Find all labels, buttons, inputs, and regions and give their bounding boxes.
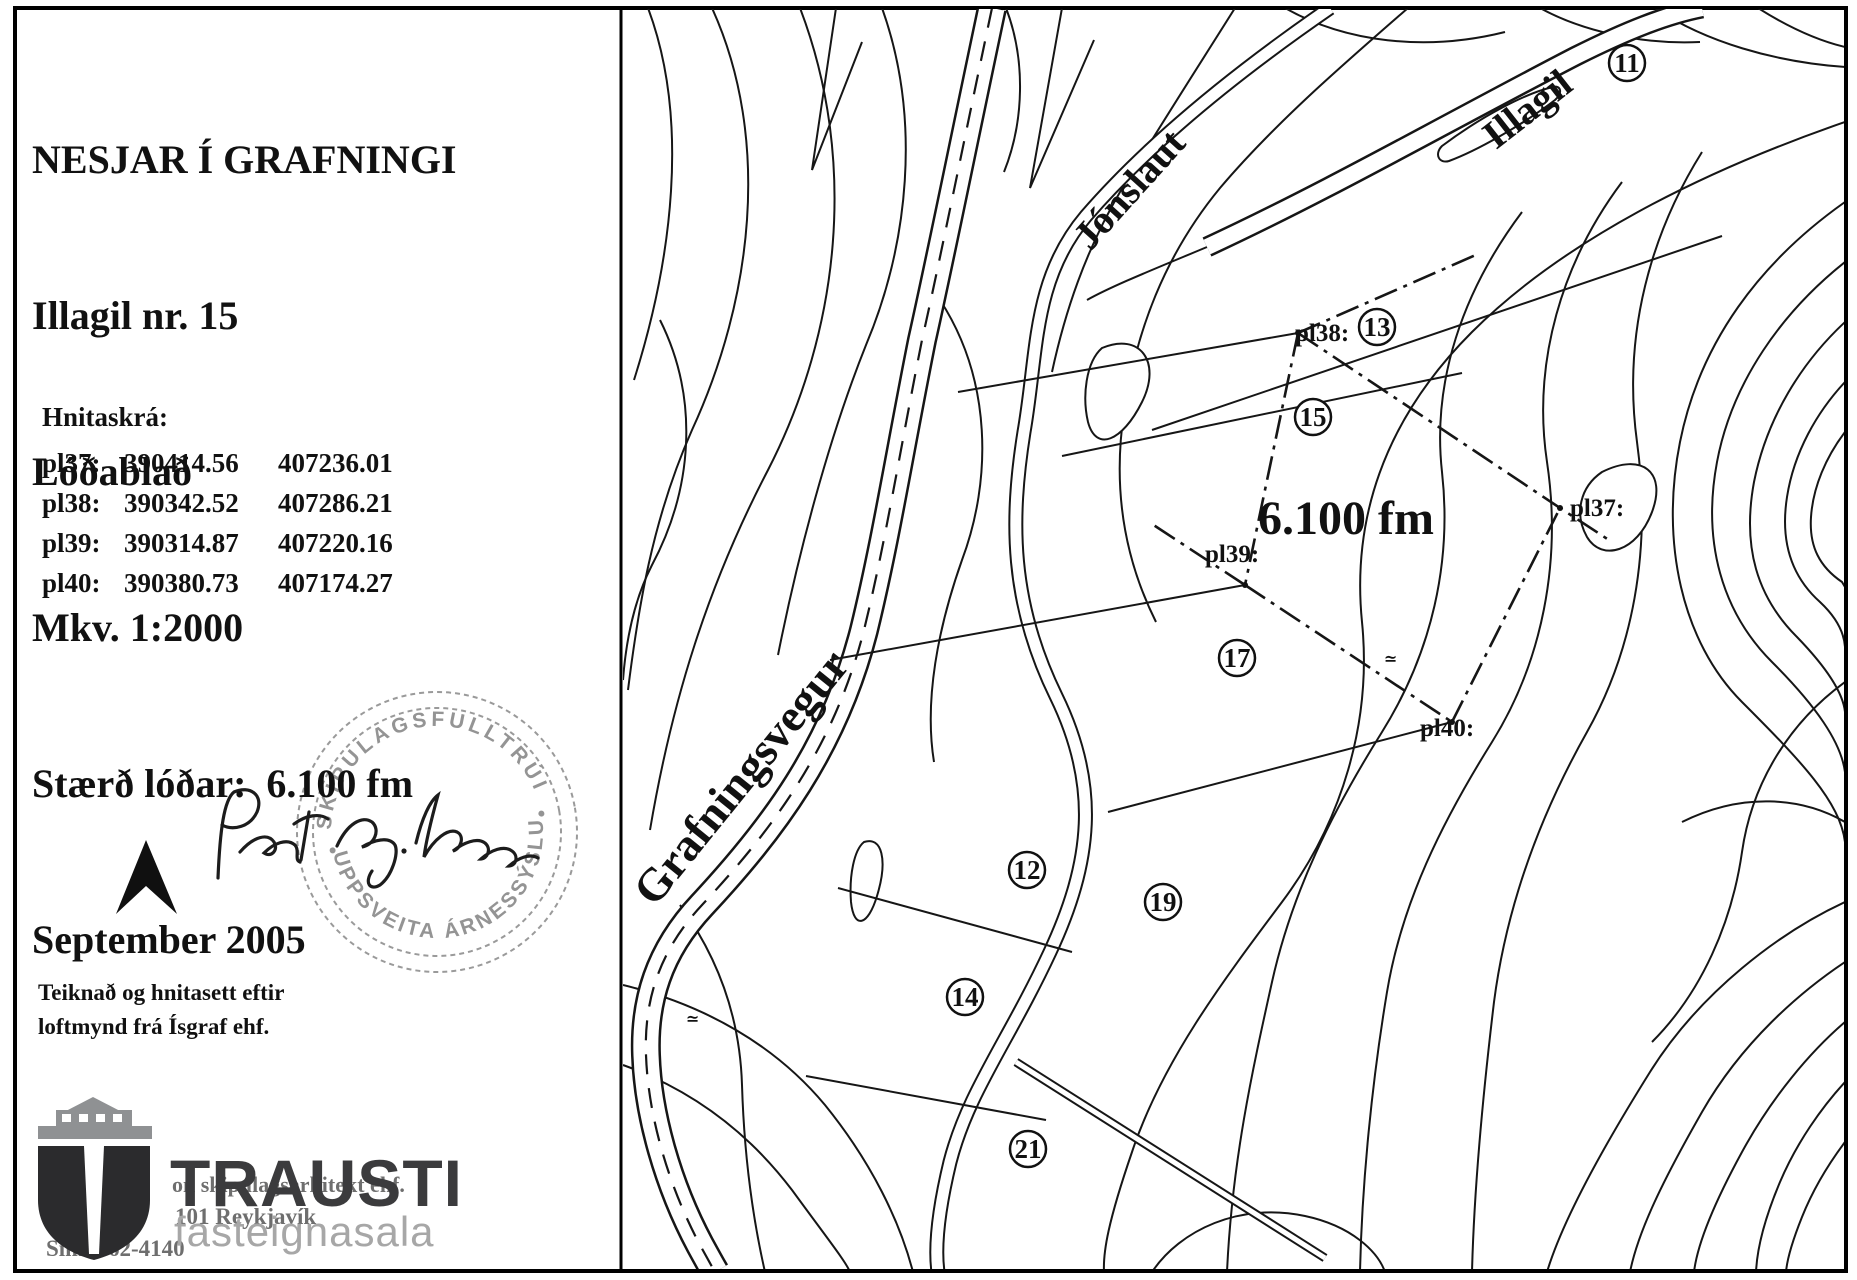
credit-line2: loftmynd frá Ísgraf ehf. <box>38 1010 284 1044</box>
svg-text:11: 11 <box>1614 48 1640 78</box>
table-row: pl37: 390414.56 407236.01 <box>42 443 393 483</box>
lot-size: Stærð lóðar: 6.100 fm <box>32 758 457 810</box>
stream-label: Jónslaut <box>1064 120 1195 258</box>
coordinate-table: Hnitaskrá: pl37: 390414.56 407236.01 pl3… <box>42 402 393 603</box>
point-y: 407174.27 <box>278 563 393 603</box>
coordinate-table-heading: Hnitaskrá: <box>42 402 393 433</box>
point-x: 390380.73 <box>124 563 264 603</box>
point-label-pl40: pl40: <box>1420 715 1474 742</box>
table-row: pl38: 390342.52 407286.21 <box>42 483 393 523</box>
credit-note: Teiknað og hnitasett eftir loftmynd frá … <box>38 976 284 1044</box>
svg-text:17: 17 <box>1224 643 1251 673</box>
svg-text:15: 15 <box>1300 402 1327 432</box>
logo-building-icon <box>38 1097 152 1139</box>
contour-islands <box>851 344 1657 921</box>
svg-text:19: 19 <box>1150 887 1177 917</box>
plot-number-13: 13 <box>1359 309 1395 345</box>
stamp-separator-dot <box>538 810 545 817</box>
plot-number-11: 11 <box>1609 45 1645 81</box>
plot-number-14: 14 <box>947 979 983 1015</box>
farm-track <box>1016 1062 1325 1258</box>
plot-number-15: 15 <box>1295 399 1331 435</box>
point-label-pl37: pl37: <box>1570 495 1624 522</box>
map-tick-mark-2: ≃ <box>686 1011 699 1028</box>
svg-text:12: 12 <box>1014 855 1041 885</box>
point-label-pl39: pl39: <box>1205 541 1259 568</box>
map-scale: Mkv. 1:2000 <box>32 602 457 654</box>
point-x: 390414.56 <box>124 443 264 483</box>
point-x: 390314.87 <box>124 523 264 563</box>
svg-text:21: 21 <box>1015 1134 1042 1164</box>
lot-name: Illagil nr. 15 <box>32 290 457 342</box>
point-x: 390342.52 <box>124 483 264 523</box>
agency-logo-block: on skipulagsarkitekt ehf. 101 Reykjavík … <box>38 1097 463 1261</box>
point-label-pl38: pl38: <box>1295 320 1349 347</box>
project-title: NESJAR Í GRAFNINGI <box>32 134 457 186</box>
point-y: 407286.21 <box>278 483 393 523</box>
svg-text:13: 13 <box>1364 312 1391 342</box>
lot-area-label: 6.100 fm <box>1258 492 1434 545</box>
plot-number-21: 21 <box>1010 1131 1046 1167</box>
map-area: Grafningsvegur Jónslaut Illagil 6.100 fm… <box>623 8 1845 1272</box>
plot-number-19: 19 <box>1145 884 1181 920</box>
point-id: pl40: <box>42 563 110 603</box>
document-date: September 2005 <box>32 914 457 966</box>
table-row: pl39: 390314.87 407220.16 <box>42 523 393 563</box>
point-y: 407236.01 <box>278 443 393 483</box>
map-tick-mark-1: ≃ <box>1384 651 1397 668</box>
point-id: pl37: <box>42 443 110 483</box>
plot-map-sheet: Grafningsvegur Jónslaut Illagil 6.100 fm… <box>0 0 1857 1280</box>
point-y: 407220.16 <box>278 523 393 563</box>
point-id: pl39: <box>42 523 110 563</box>
table-row: pl40: 390380.73 407174.27 <box>42 563 393 603</box>
agency-tagline: fasteignasala <box>174 1208 435 1255</box>
point-id: pl38: <box>42 483 110 523</box>
plot-number-12: 12 <box>1009 852 1045 888</box>
parcel-lines <box>806 236 1722 1120</box>
credit-line1: Teiknað og hnitasett eftir <box>38 976 284 1010</box>
plot-number-17: 17 <box>1219 640 1255 676</box>
svg-text:14: 14 <box>952 982 979 1012</box>
